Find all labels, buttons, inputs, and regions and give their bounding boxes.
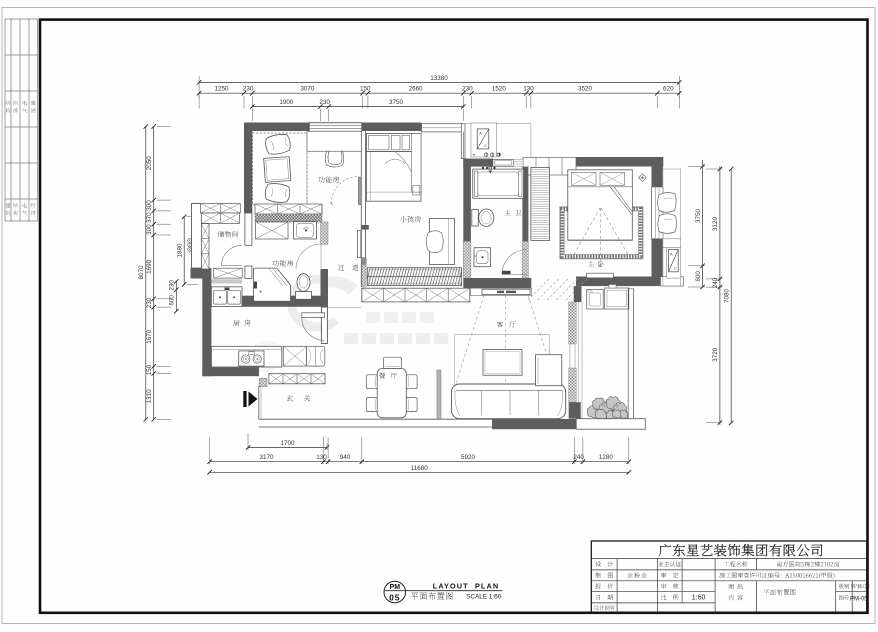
svg-text:300: 300: [146, 200, 153, 211]
svg-text:940: 940: [340, 454, 351, 461]
svg-text:05: 05: [389, 593, 400, 603]
svg-text:230: 230: [243, 86, 254, 93]
svg-text:3750: 3750: [389, 99, 404, 106]
svg-text:300: 300: [146, 224, 153, 235]
svg-text:370: 370: [146, 212, 153, 223]
svg-text:230: 230: [462, 86, 473, 93]
svg-text:1:60: 1:60: [692, 595, 706, 602]
svg-text:600: 600: [169, 295, 176, 306]
svg-text:2660: 2660: [409, 86, 424, 93]
svg-text:C: C: [484, 144, 487, 148]
svg-text:SCALE 1:60: SCALE 1:60: [466, 594, 502, 601]
svg-text:1670: 1670: [146, 329, 153, 344]
svg-text:3120: 3120: [712, 217, 719, 232]
svg-text:3720: 3720: [712, 347, 719, 362]
svg-text:LAYOUT PLAN: LAYOUT PLAN: [433, 582, 499, 591]
svg-text:7080: 7080: [724, 289, 731, 304]
svg-text:230: 230: [169, 280, 176, 291]
svg-text:130: 130: [316, 454, 327, 461]
svg-text:PM: PM: [390, 584, 401, 591]
svg-text:240: 240: [712, 277, 719, 288]
svg-text:2050: 2050: [146, 156, 153, 171]
svg-text:11680: 11680: [411, 465, 429, 472]
svg-text:240: 240: [573, 454, 584, 461]
svg-text:1700: 1700: [280, 440, 295, 447]
svg-text:1280: 1280: [599, 454, 614, 461]
svg-text:230: 230: [146, 297, 153, 308]
svg-text:150: 150: [146, 364, 153, 375]
svg-text:1250: 1250: [214, 86, 229, 93]
svg-text:230: 230: [319, 99, 330, 106]
svg-text:1690: 1690: [146, 259, 153, 274]
svg-text:3520: 3520: [578, 86, 593, 93]
svg-text:PM-05: PM-05: [850, 596, 868, 602]
svg-text:3170: 3170: [259, 454, 274, 461]
svg-text:8070: 8070: [138, 265, 145, 280]
svg-text:1880: 1880: [177, 243, 184, 258]
svg-text:3750: 3750: [695, 209, 702, 224]
svg-text:150: 150: [360, 86, 371, 93]
svg-text:13380: 13380: [430, 75, 448, 82]
svg-text:1520: 1520: [492, 86, 507, 93]
svg-text:620: 620: [663, 86, 674, 93]
svg-text:600: 600: [695, 271, 702, 282]
svg-text:130: 130: [523, 86, 534, 93]
svg-text:1310: 1310: [146, 389, 153, 404]
svg-text:1900: 1900: [279, 99, 294, 106]
svg-text:3070: 3070: [300, 86, 315, 93]
svg-text:5920: 5920: [461, 454, 476, 461]
svg-text:C: C: [674, 267, 677, 271]
